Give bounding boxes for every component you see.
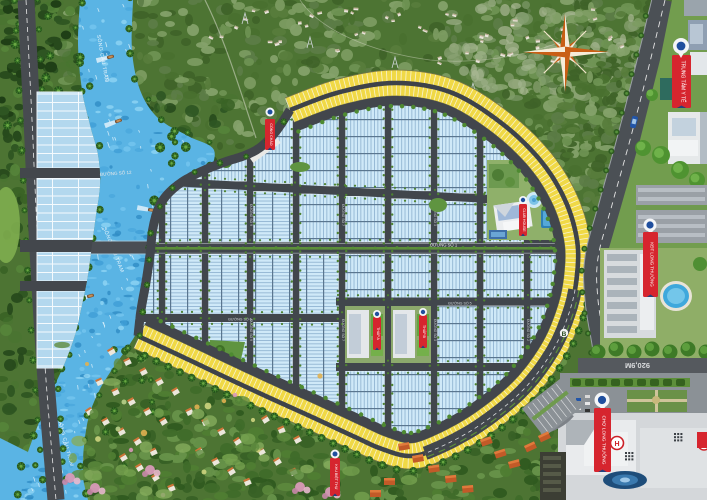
svg-text:ĐƯỜNG SỐ 1: ĐƯỜNG SỐ 1: [430, 243, 458, 248]
svg-text:H: H: [614, 441, 619, 448]
svg-text:B: B: [562, 331, 567, 338]
svg-text:CỔNG CHÀO: CỔNG CHÀO: [269, 123, 274, 145]
svg-text:THÁP A: THÁP A: [376, 327, 380, 340]
svg-text:ĐƯỜNG SỐ 2: ĐƯỜNG SỐ 2: [526, 319, 531, 341]
svg-text:CHỢ LONG THƯỞNG: CHỢ LONG THƯỞNG: [601, 415, 608, 464]
svg-text:KĐT LONG THƯỞNG: KĐT LONG THƯỞNG: [650, 242, 656, 287]
svg-text:ĐƯỜNG SỐ 6: ĐƯỜNG SỐ 6: [228, 317, 251, 322]
svg-text:THÁP B: THÁP B: [422, 325, 426, 339]
svg-text:ĐƯỜNG SỐ 7: ĐƯỜNG SỐ 7: [341, 204, 346, 226]
svg-text:920,9M: 920,9M: [625, 361, 650, 370]
svg-text:ĐƯỜNG SỐ 5: ĐƯỜNG SỐ 5: [448, 300, 471, 305]
svg-text:ĐƯỜNG SỐ 9: ĐƯỜNG SỐ 9: [249, 319, 254, 341]
svg-text:KHU BIỆT THỰ: KHU BIỆT THỰ: [334, 464, 339, 489]
svg-text:ĐƯỜNG SỐ 9: ĐƯỜNG SỐ 9: [249, 204, 254, 226]
svg-text:CLUB HOUSE: CLUB HOUSE: [522, 208, 526, 232]
svg-text:ĐƯỜNG SỐ 3: ĐƯỜNG SỐ 3: [433, 319, 438, 341]
svg-text:TRUNG TÂM Y TẾ: TRUNG TÂM Y TẾ: [680, 61, 687, 104]
